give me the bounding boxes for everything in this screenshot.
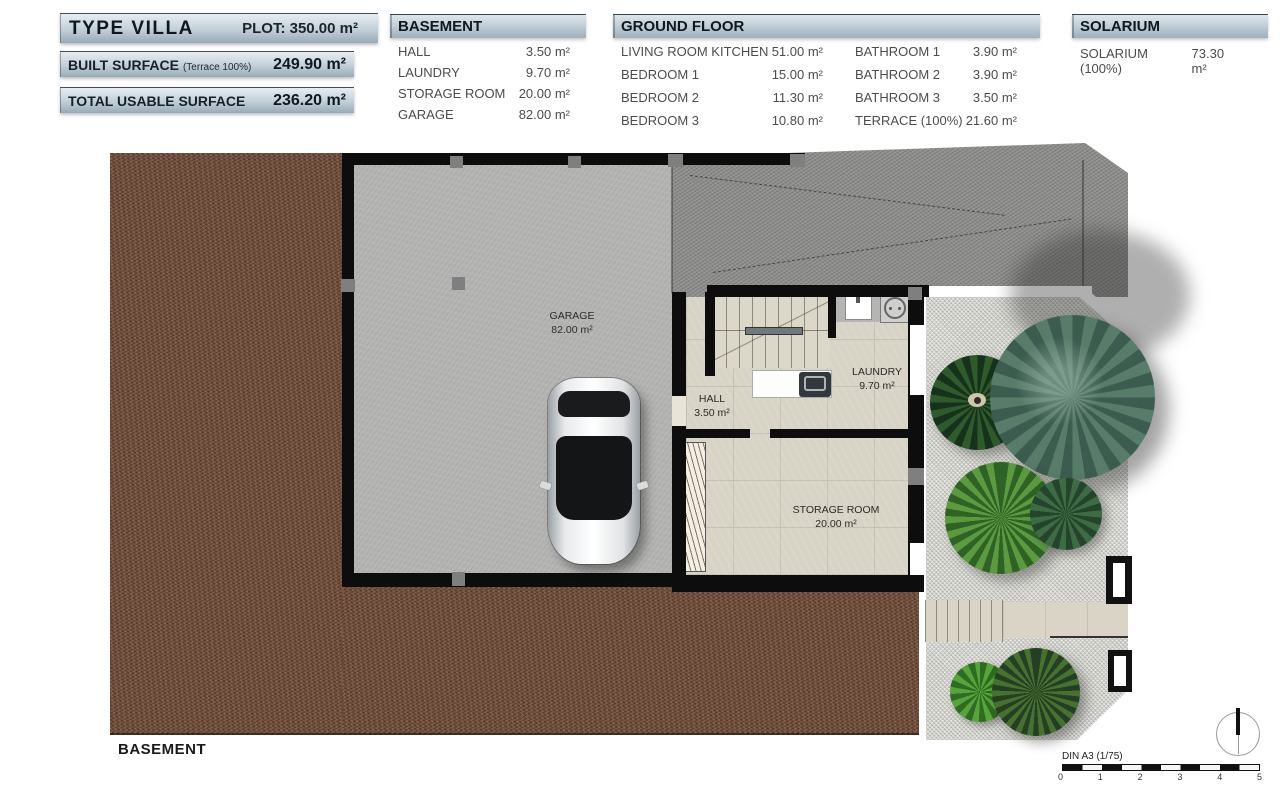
legend-row: LIVING ROOM KITCHEN 51.00 m² — [613, 44, 831, 59]
row-value: 20.00 m² — [519, 86, 578, 101]
room-name: LAUNDRY — [842, 366, 912, 380]
row-value: 15.00 m² — [772, 67, 831, 82]
legend-row: SOLARIUM (100%) 73.30 m² — [1072, 46, 1250, 76]
room-area: 3.50 m² — [682, 407, 742, 421]
wall-segment — [342, 153, 354, 587]
villa-type-label: TYPE VILLA — [60, 18, 194, 40]
built-surface-value: 249.90 m² — [273, 56, 354, 74]
room-name: HALL — [682, 393, 742, 407]
row-label: STORAGE ROOM — [390, 86, 505, 101]
compass-needle — [1236, 708, 1240, 735]
stairs-handrail — [745, 327, 803, 335]
legend-row: LAUNDRY 9.70 m² — [390, 65, 578, 80]
row-label: BATHROOM 1 — [847, 44, 940, 59]
pillar — [341, 279, 355, 292]
wall-segment — [342, 573, 678, 587]
scale-tick: 5 — [1257, 772, 1262, 782]
washer-dot — [898, 307, 901, 310]
wall-segment — [707, 285, 929, 297]
row-label: GARAGE — [390, 107, 454, 122]
row-label: BATHROOM 2 — [847, 67, 940, 82]
row-label: LIVING ROOM KITCHEN — [613, 44, 768, 59]
legend-row: GARAGE 82.00 m² — [390, 107, 578, 122]
legend-row: BEDROOM 1 15.00 m² — [613, 67, 831, 82]
row-label: BATHROOM 3 — [847, 90, 940, 105]
legend-row: BEDROOM 3 10.80 m² — [613, 113, 831, 128]
wall-segment — [686, 429, 750, 438]
scale-label: DIN A3 (1/75) — [1062, 751, 1123, 762]
row-label: SOLARIUM (100%) — [1072, 46, 1192, 76]
built-surface-labels: BUILT SURFACE (Terrace 100%) — [60, 57, 251, 73]
usable-surface-value: 236.20 m² — [273, 92, 354, 110]
washer-dot — [889, 307, 892, 310]
row-value: 11.30 m² — [773, 90, 831, 105]
legend-solarium-title: SOLARIUM — [1072, 14, 1268, 38]
usable-surface-label: TOTAL USABLE SURFACE — [60, 93, 245, 109]
row-label: BEDROOM 2 — [613, 90, 699, 105]
palm-center — [974, 397, 981, 404]
legend-row: HALL 3.50 m² — [390, 44, 578, 59]
scale-tick: 0 — [1058, 772, 1063, 782]
scale-bar — [1062, 764, 1260, 771]
exterior-stairs — [925, 600, 1003, 642]
scale-tick: 1 — [1098, 772, 1103, 782]
wall-segment — [828, 292, 836, 338]
pillar — [908, 287, 922, 300]
legend-row: TERRACE (100%) 21.60 m² — [847, 113, 1025, 128]
pillar — [908, 468, 924, 485]
row-value: 73.30 m² — [1192, 46, 1250, 76]
garden-door-frame — [1108, 650, 1132, 692]
label-garage: GARAGE 82.00 m² — [512, 310, 632, 337]
washer-porthole-icon — [884, 297, 906, 319]
row-value: 3.90 m² — [973, 67, 1025, 82]
built-surface-note: (Terrace 100%) — [183, 62, 251, 73]
plot-area-value: PLOT: 350.00 m² — [242, 20, 378, 37]
row-label: LAUNDRY — [390, 65, 460, 80]
summary-bar-type: TYPE VILLA PLOT: 350.00 m² — [60, 13, 378, 43]
washing-machine — [880, 293, 910, 323]
legend-row: BEDROOM 2 11.30 m² — [613, 90, 831, 105]
legend-basement-title: BASEMENT — [390, 14, 586, 38]
floor-title: BASEMENT — [118, 741, 206, 758]
label-laundry: LAUNDRY 9.70 m² — [842, 366, 912, 393]
pillar — [450, 156, 463, 168]
scale-tick: 2 — [1138, 772, 1143, 782]
dryer-door-icon — [804, 376, 826, 391]
region-dirt-bottom — [342, 585, 922, 735]
legend-row: STORAGE ROOM 20.00 m² — [390, 86, 578, 101]
garden-door-frame — [1106, 556, 1132, 604]
summary-bar-usable: TOTAL USABLE SURFACE 236.20 m² — [60, 87, 354, 113]
tree-large — [990, 315, 1155, 480]
row-value: 51.00 m² — [772, 44, 831, 59]
car-rear-window — [558, 391, 630, 417]
row-value: 10.80 m² — [772, 113, 831, 128]
legend-row: BATHROOM 2 3.90 m² — [847, 67, 1025, 82]
pillar — [568, 156, 581, 168]
pillar — [452, 277, 465, 290]
yucca-bottom — [992, 648, 1080, 736]
dryer-machine — [799, 372, 831, 397]
scale-tick: 3 — [1177, 772, 1182, 782]
room-area: 82.00 m² — [512, 324, 632, 338]
room-area: 20.00 m² — [776, 518, 896, 532]
region-dirt-left — [110, 153, 342, 735]
label-storage: STORAGE ROOM 20.00 m² — [776, 504, 896, 531]
wall-segment — [672, 575, 924, 592]
pillar — [668, 154, 683, 167]
bush-small — [1030, 478, 1102, 550]
compass-icon — [1216, 712, 1260, 756]
room-name: GARAGE — [512, 310, 632, 324]
car-top-view — [548, 378, 640, 564]
row-value: 21.60 m² — [966, 113, 1025, 128]
row-label: TERRACE (100%) — [847, 113, 963, 128]
row-value: 3.90 m² — [973, 44, 1025, 59]
room-name: STORAGE ROOM — [776, 504, 896, 518]
handrail-line — [1050, 636, 1128, 638]
scale-tick: 4 — [1217, 772, 1222, 782]
wall-segment — [705, 292, 715, 376]
row-value: 3.50 m² — [526, 44, 578, 59]
legend-groundfloor-title: GROUND FLOOR — [613, 14, 1040, 38]
row-value: 82.00 m² — [519, 107, 578, 122]
wall-segment — [672, 292, 686, 577]
door-opening — [910, 543, 924, 575]
row-value: 9.70 m² — [526, 65, 578, 80]
compass-tail — [1238, 735, 1239, 754]
row-value: 3.50 m² — [973, 90, 1025, 105]
wall-segment — [770, 429, 910, 438]
room-area: 9.70 m² — [842, 380, 912, 394]
exterior-path — [1003, 602, 1128, 638]
summary-bar-built: BUILT SURFACE (Terrace 100%) 249.90 m² — [60, 51, 354, 77]
pillar — [790, 154, 805, 167]
row-label: BEDROOM 3 — [613, 113, 699, 128]
pillar — [452, 572, 465, 586]
row-label: BEDROOM 1 — [613, 67, 699, 82]
row-label: HALL — [390, 44, 431, 59]
legend-row: BATHROOM 3 3.50 m² — [847, 90, 1025, 105]
built-surface-label: BUILT SURFACE — [60, 57, 179, 73]
label-hall: HALL 3.50 m² — [682, 393, 742, 420]
floorplan-page: TYPE VILLA PLOT: 350.00 m² BUILT SURFACE… — [0, 0, 1280, 800]
legend-row: BATHROOM 1 3.90 m² — [847, 44, 1025, 59]
garage-door-line — [671, 163, 673, 293]
car-windshield — [556, 436, 632, 520]
door-opening — [910, 325, 924, 395]
scale-ticks: 0 1 2 3 4 5 — [1058, 772, 1262, 782]
